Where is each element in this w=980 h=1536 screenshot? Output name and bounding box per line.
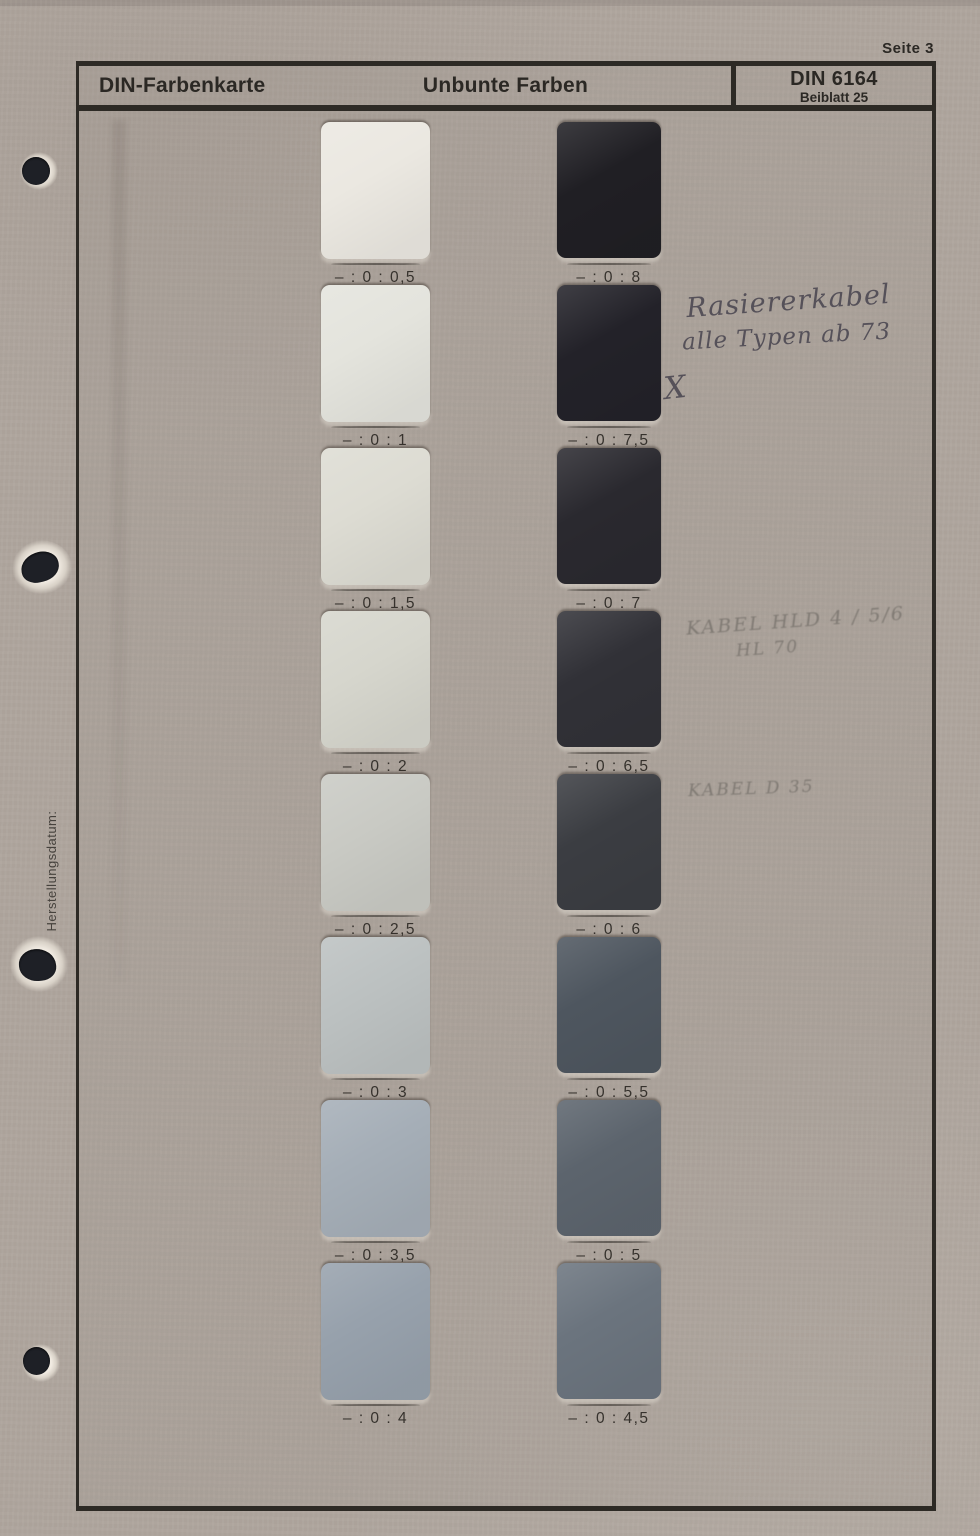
swatch-cell: – : 0 : 1 — [321, 285, 430, 422]
handwritten-x-mark: X — [662, 369, 688, 407]
color-chip — [321, 1100, 430, 1237]
chip-slit — [331, 426, 420, 428]
color-chip — [557, 937, 661, 1073]
margin-caption: Herstellungsdatum: — [44, 806, 60, 936]
chip-slit — [567, 752, 651, 754]
color-chip — [321, 122, 430, 259]
swatch-cell: – : 0 : 5 — [557, 1100, 661, 1236]
color-chip — [557, 774, 661, 910]
chip-slit — [331, 1078, 420, 1080]
color-chip — [557, 285, 661, 421]
standard-number: DIN 6164 — [736, 68, 932, 90]
punch-hole — [22, 157, 50, 185]
color-chip — [557, 122, 661, 258]
color-chip — [321, 448, 430, 585]
chip-slit — [567, 589, 651, 591]
swatch-cell: – : 0 : 6 — [557, 774, 661, 910]
swatch-cell: – : 0 : 3 — [321, 937, 430, 1074]
color-chip — [321, 285, 430, 422]
swatch-label: – : 0 : 4,5 — [537, 1410, 681, 1428]
color-chip — [557, 611, 661, 747]
swatch-cell: – : 0 : 2 — [321, 611, 430, 748]
chip-slit — [567, 1078, 651, 1080]
chip-slit — [331, 263, 420, 265]
standard-box: DIN 6164 Beiblatt 25 — [731, 66, 932, 105]
color-chip — [557, 1100, 661, 1236]
chip-slit — [331, 752, 420, 754]
card-header: DIN-Farbenkarte Unbunte Farben DIN 6164 … — [79, 66, 932, 111]
swatch-cell: – : 0 : 8 — [557, 122, 661, 258]
chip-slit — [567, 1241, 651, 1243]
swatch-cell: – : 0 : 1,5 — [321, 448, 430, 585]
color-chip — [321, 1263, 430, 1400]
chip-slit — [331, 1241, 420, 1243]
chip-slit — [331, 589, 420, 591]
swatch-cell: – : 0 : 6,5 — [557, 611, 661, 747]
punch-hole — [23, 1347, 50, 1375]
swatch-cell: – : 0 : 2,5 — [321, 774, 430, 911]
swatch-cell: – : 0 : 7 — [557, 448, 661, 584]
scanned-din-color-card: Seite 3 DIN-Farbenkarte Unbunte Farben D… — [0, 0, 980, 1536]
chip-slit — [567, 263, 651, 265]
swatch-cell: – : 0 : 3,5 — [321, 1100, 430, 1237]
color-chip — [321, 937, 430, 1074]
swatch-label: – : 0 : 4 — [301, 1410, 450, 1428]
page-number: Seite 3 — [882, 40, 934, 57]
swatch-cell: – : 0 : 7,5 — [557, 285, 661, 421]
color-chip — [321, 774, 430, 911]
chip-slit — [567, 915, 651, 917]
swatch-cell: – : 0 : 4 — [321, 1263, 430, 1400]
swatch-cell: – : 0 : 5,5 — [557, 937, 661, 1073]
color-chip — [557, 448, 661, 584]
chip-slit — [567, 426, 651, 428]
chip-slit — [331, 1404, 420, 1406]
standard-addendum: Beiblatt 25 — [736, 90, 932, 105]
scan-edge-shadow — [0, 0, 980, 6]
color-chip — [321, 611, 430, 748]
color-chip — [557, 1263, 661, 1399]
swatch-cell: – : 0 : 0,5 — [321, 122, 430, 259]
chip-slit — [567, 1404, 651, 1406]
paper-crease — [112, 120, 126, 980]
swatch-cell: – : 0 : 4,5 — [557, 1263, 661, 1399]
chip-slit — [331, 915, 420, 917]
